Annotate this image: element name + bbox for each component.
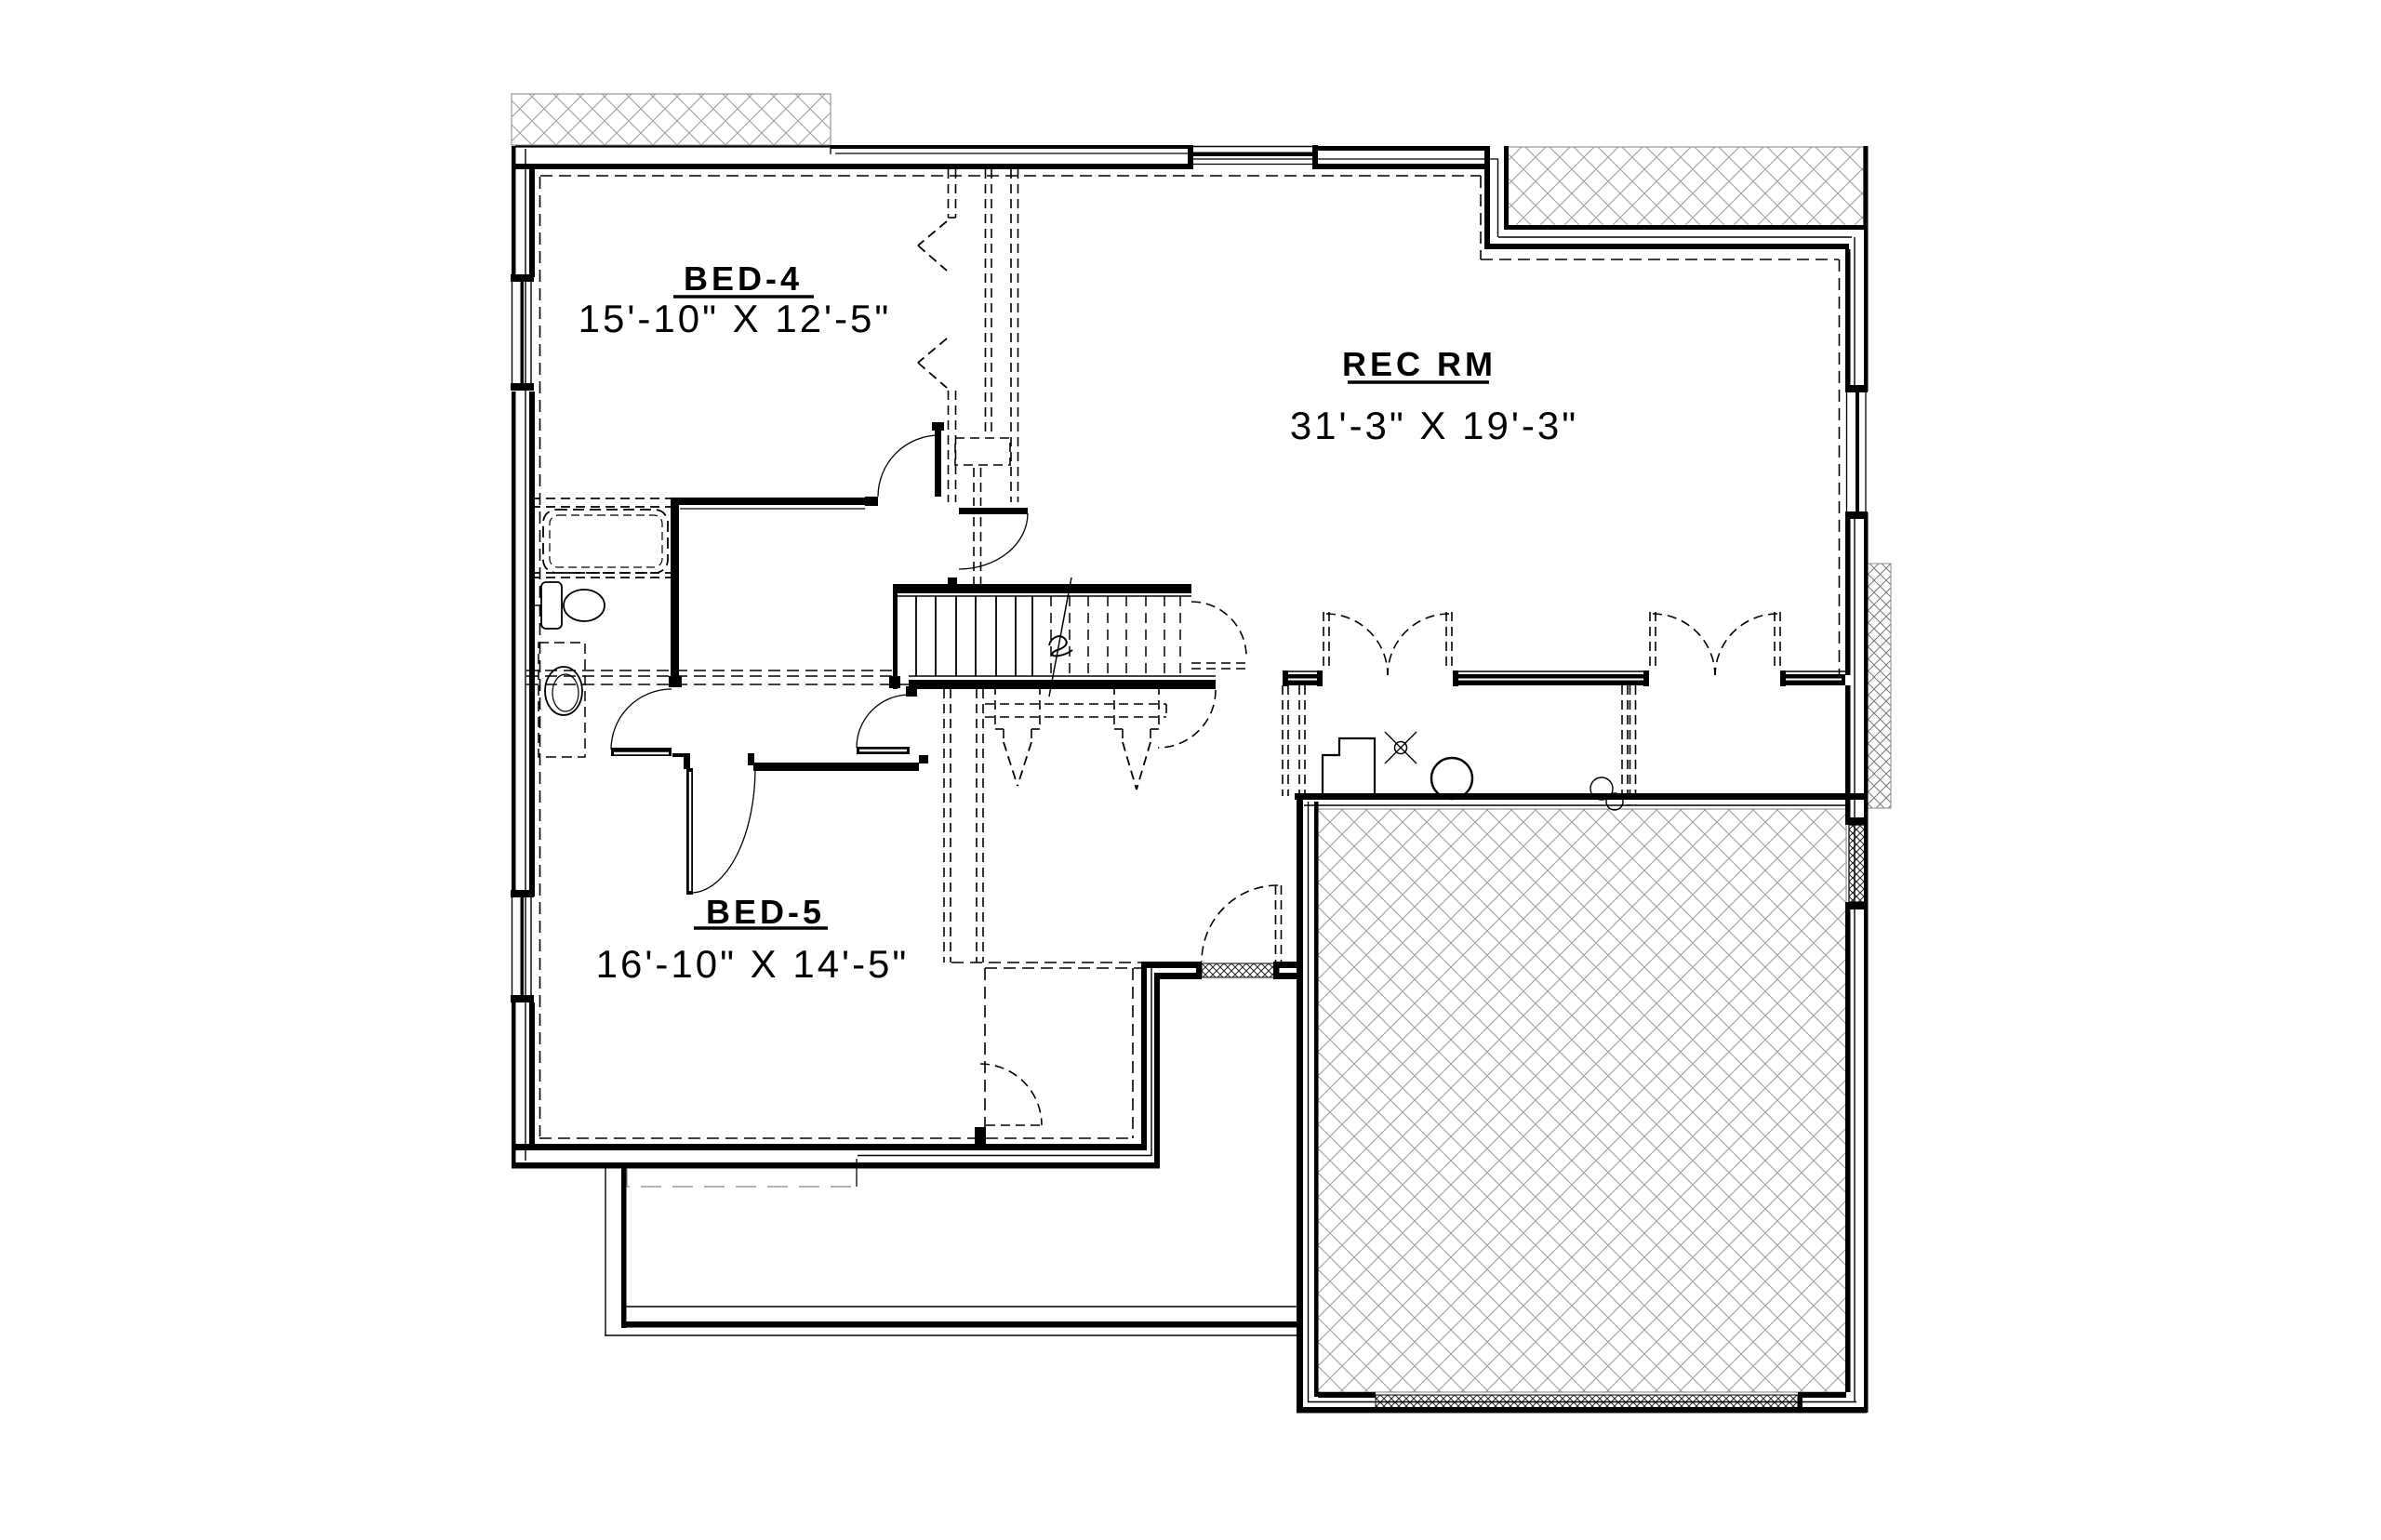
svg-text:REC RM: REC RM <box>1342 345 1496 383</box>
svg-text:BED-4: BED-4 <box>684 259 803 298</box>
svg-text:15'-10" X 12'-5": 15'-10" X 12'-5" <box>579 297 892 340</box>
svg-text:31'-3" X 19'-3": 31'-3" X 19'-3" <box>1290 404 1578 447</box>
svg-text:BED-5: BED-5 <box>706 893 825 931</box>
svg-text:16'-10" X 14'-5": 16'-10" X 14'-5" <box>596 942 910 986</box>
